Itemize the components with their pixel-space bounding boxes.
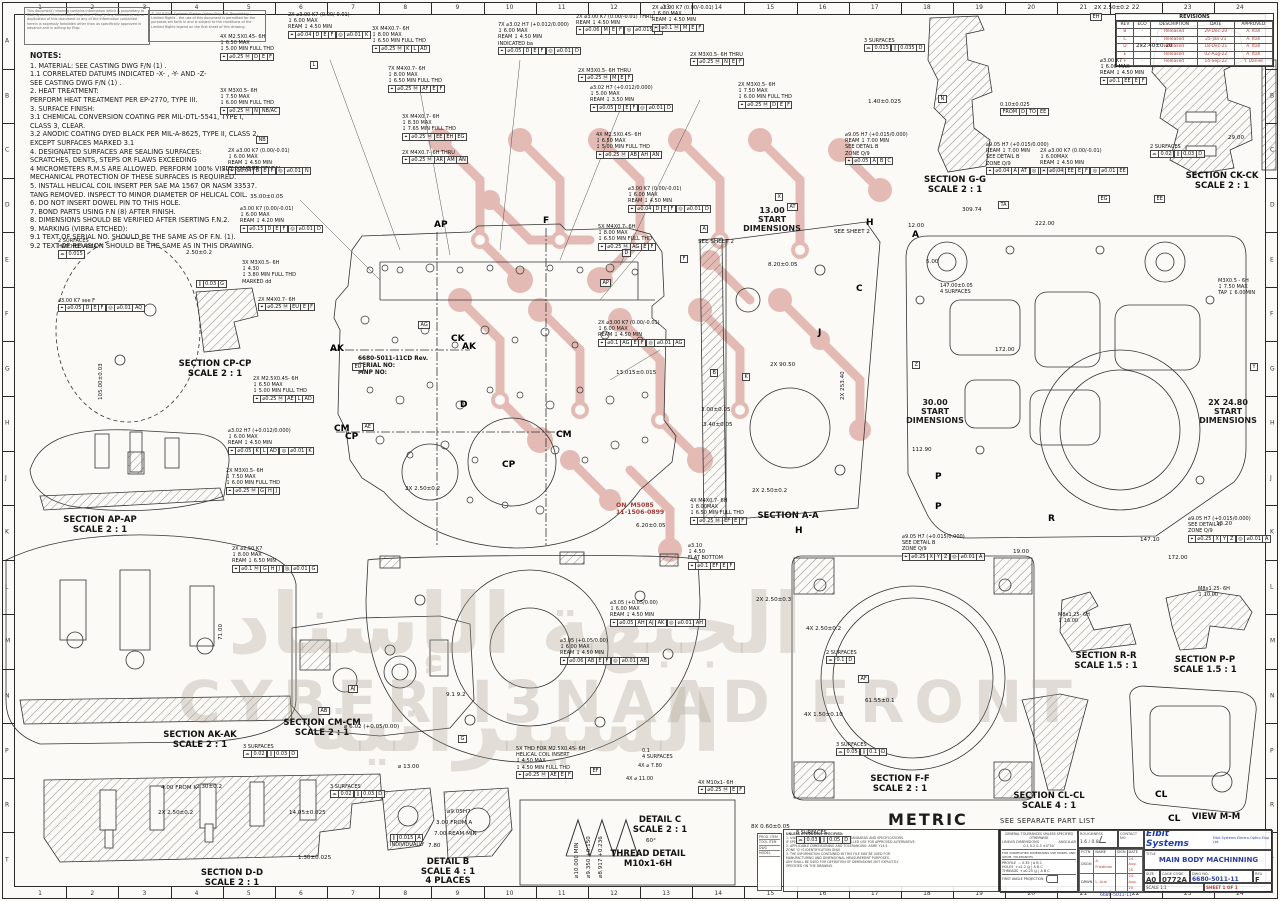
datum-tag: D xyxy=(622,249,631,257)
grid-tick xyxy=(1266,232,1278,233)
grid-tick xyxy=(1266,287,1278,288)
gdt-callout: ⌀3.05 (+0.05/0.00)↧ 6.00 MAXREAM ↧ 4.50 … xyxy=(610,600,706,627)
dimension-text: 9.1 9.2 xyxy=(446,692,466,698)
sheet-number: SHEET 1 OF 1 xyxy=(1206,885,1238,890)
section-label: THREAD DETAILM10x1-6H xyxy=(610,850,685,869)
grid-column-number: 10 xyxy=(506,4,514,11)
section-label: SECTION CK-CKSCALE 2 : 1 xyxy=(1186,172,1259,191)
grid-column-number: 13 xyxy=(662,890,670,897)
grid-tick xyxy=(379,887,380,899)
grid-tick xyxy=(1266,451,1278,452)
dimension-text: 112.90 xyxy=(912,447,932,453)
note-line: SEE CASTING DWG F/N (1) . xyxy=(30,79,310,88)
dimension-text: 147.10 xyxy=(1140,537,1160,543)
grid-tick xyxy=(327,887,328,899)
grid-column-number: 9 xyxy=(455,4,459,11)
grid-column-number: 7 xyxy=(351,4,355,11)
grid-column-number: 12 xyxy=(610,4,618,11)
datum-tag: G xyxy=(458,735,467,743)
prod-item-block: PROD. ITEMTOOL ITEMDWGMODEL xyxy=(757,833,782,891)
grid-tick xyxy=(1266,69,1278,70)
grid-row-letter: E xyxy=(5,256,9,263)
dimension-text: 2.30±0.2 xyxy=(196,784,222,790)
section-label: VIEW M-M xyxy=(1192,813,1240,823)
scale-cell: SCALE 1:1 xyxy=(1144,883,1204,893)
datum-tag: L xyxy=(310,61,318,69)
cutting-plane-letter: C xyxy=(856,284,863,294)
gdt-callout: ⌀3.10↧ 4.50FLAT BOTTOM⌖⌀0.1EFEF xyxy=(688,543,735,570)
drawing-title: MAIN BODY MACHINNING xyxy=(1146,856,1271,864)
dimension-text: 71.00 xyxy=(218,624,224,640)
dimension-text: SEE SHEET 2 xyxy=(834,229,870,235)
size-cell: SIZE A0 xyxy=(1144,870,1160,883)
grid-column-number: 5 xyxy=(247,890,251,897)
drawing-number: 6680-5011-11 xyxy=(1192,876,1239,883)
gdt-callout: 3X M4X0.7- 6H↧ 8.00 MAX↧ 6.50 MIN FULL T… xyxy=(372,26,430,53)
grid-column-number: 21 xyxy=(1080,4,1088,11)
dwg-no-cell: DWG NO. 6680-5011-11 xyxy=(1190,870,1253,883)
gdt-callout: ⌀3.00 K7 see F⌖⌀0.05DEF◎⌀0.01AQ xyxy=(58,298,145,312)
grid-tick xyxy=(484,2,485,14)
grid-column-number: 20 xyxy=(1027,4,1035,11)
grid-column-number: 22 xyxy=(1132,4,1140,11)
gdt-callout: ⌀3.02 H7 (+0.012/0.000)↧ 6.00 MAXREAM ↧ … xyxy=(228,428,314,455)
view-thread-detail xyxy=(520,800,735,885)
section-label: SECTION P-PSCALE 1.5 : 1 xyxy=(1173,656,1236,675)
grid-column-number: 11 xyxy=(558,890,566,897)
datum-tag: AB xyxy=(318,707,330,715)
grid-tick xyxy=(2,451,14,452)
grid-row-letter: J xyxy=(5,474,7,481)
grid-tick xyxy=(1266,723,1278,724)
grid-tick xyxy=(2,723,14,724)
grid-tick xyxy=(1266,560,1278,561)
grid-tick xyxy=(275,887,276,899)
dimension-text: ⌀10.000 MIN xyxy=(574,843,580,878)
grid-tick xyxy=(66,887,67,899)
dimension-text: 2X 2.50±0.3 xyxy=(756,597,791,603)
grid-tick xyxy=(901,2,902,14)
gdt-callout: 7X ⌀3.02 H7 (+0.012/0.000)↧ 6.00 MAXREAM… xyxy=(498,22,581,55)
datum-tag: EG xyxy=(1098,195,1110,203)
gdt-callout: 3X M3X0.5- 6H↧ 4.30↧ 3.80 MIN FULL THDMA… xyxy=(242,260,296,285)
datum-tag: EF xyxy=(590,767,601,775)
gdt-callout: 4X M2.5X0.45- 6H↧ 6.50 MAX↧ 5.00 MIN FUL… xyxy=(220,34,274,61)
dimension-text: 5.00 xyxy=(926,259,938,265)
gdt-callout: 2 SURFACESHATCHED AREA⌓0.015 xyxy=(58,238,97,259)
dimension-text: ⌀9.350 +0.150 xyxy=(586,836,592,878)
grid-row-letter: R xyxy=(5,802,9,809)
dimension-text: 172.00 xyxy=(995,347,1015,353)
gdt-callout: 2X M3X0.5- 6H THRU⌖⌀0.25 ⓂMEF xyxy=(578,68,633,82)
datum-tag: AF xyxy=(858,675,869,683)
section-label: SECTION A-A xyxy=(757,512,818,522)
cutting-plane-letter: F xyxy=(543,216,549,226)
grid-tick xyxy=(588,2,589,14)
grid-tick xyxy=(2,614,14,615)
grid-row-letter: L xyxy=(5,583,8,590)
revision-row: B-Released29-Dec-20A. Itah xyxy=(1117,29,1273,36)
gdt-callout: 8 SURFACES⌓0.03∥0.05D xyxy=(796,830,851,844)
grid-row-letter: H xyxy=(1270,420,1275,427)
gdt-callout: M8x1.25- 6H↧ 10.00 xyxy=(1198,586,1230,598)
gdt-callout: 2X M4X0.7- 6H THRU⌖⌀0.25 ⓂARAMAN xyxy=(402,150,468,164)
gdt-callout: 5X THD FOR M2.5X0.45- 6HHELICAL COIL INS… xyxy=(516,746,585,779)
dimension-text: 12.00 xyxy=(908,223,924,229)
grid-row-letter: F xyxy=(5,311,8,318)
grid-column-number: 18 xyxy=(923,4,931,11)
grid-tick xyxy=(223,887,224,899)
section-label: SECTION R-RSCALE 1.5 : 1 xyxy=(1074,652,1137,671)
dimension-text: 222.00 xyxy=(1035,221,1055,227)
cutting-plane-letter: P xyxy=(935,472,942,482)
note-line: 1.1 CORRELATED DATUMS INDICATED -X- , -Y… xyxy=(30,70,310,79)
dimension-text: 8X 0.60±0.05 xyxy=(751,824,790,830)
note-line: 5. INSTALL HELICAL COIL INSERT PER SAE M… xyxy=(30,182,310,191)
grid-tick xyxy=(1266,178,1278,179)
grid-row-letter: R xyxy=(1270,802,1274,809)
view-bottom-bowl xyxy=(366,552,700,762)
start-dimension-note: 2X 24.80STARTDIMENSIONS xyxy=(1199,398,1257,425)
grid-tick xyxy=(118,887,119,899)
dimension-text: 205.00±0.05 xyxy=(222,166,259,172)
gdt-callout: M3X0.5 - 6H↧ 7.50 MAXTAP ↧ 6.00MIN xyxy=(1218,278,1255,297)
grid-tick xyxy=(588,887,589,899)
first-angle-projection-icon xyxy=(1046,875,1058,883)
dimension-text: 1.30±0.025 xyxy=(298,855,331,861)
grid-column-number: 2 xyxy=(90,890,94,897)
grid-tick xyxy=(1266,396,1278,397)
dimension-text: 13.20 xyxy=(1216,521,1232,527)
datum-tag: AJ xyxy=(348,685,358,693)
grid-row-letter: J xyxy=(1270,474,1272,481)
gdt-callout: 4X ⌀ 7.80 xyxy=(638,763,662,769)
grid-row-letter: H xyxy=(5,420,10,427)
grid-tick xyxy=(953,2,954,14)
grid-column-number: 7 xyxy=(351,890,355,897)
gdt-callout: 2X ⌀3.00 K7 (0.00/-0.01)↧ 6.00 MAXREAM ↧… xyxy=(652,5,714,32)
grid-column-number: 14 xyxy=(714,4,722,11)
grid-tick xyxy=(640,887,641,899)
gdt-callout: 2X M3X0.5- 6H THRU⌖⌀0.25 ⓂNEF xyxy=(690,52,744,66)
grid-row-letter: K xyxy=(5,529,9,536)
grid-column-number: 11 xyxy=(558,4,566,11)
signature-row: DRWNL. Arie24-Aug-20 xyxy=(1080,874,1143,892)
grid-row-letter: B xyxy=(5,92,9,99)
view-section-p-p xyxy=(1166,590,1252,650)
grid-column-number: 19 xyxy=(975,4,983,11)
gdt-callout: 3X M4X0.7- 6H↧ 8.30 MAX↧ 7.65 MIN FULL T… xyxy=(402,114,467,141)
gdt-callout: 3 SURFACES⌓0.02∥0.03D xyxy=(243,744,298,758)
gdt-callout: 4X M4X0.7- 6H↧ 8.00MAX↧ 6.50 MIN FULL TH… xyxy=(690,498,747,525)
grid-tick xyxy=(692,887,693,899)
view-section-g-g xyxy=(928,16,992,172)
dimension-text: 8.20±0.05 xyxy=(768,262,798,268)
grid-tick xyxy=(1266,614,1278,615)
section-label: SECTION G-GSCALE 2 : 1 xyxy=(924,176,986,195)
gdt-callout: 2X ⌀3.00 K7 (0.00/-0.01)↧ 6.00 MAXREAM ↧… xyxy=(598,320,685,347)
company-logo-cell: Elbit Systems Elbit Systems Electro-Opti… xyxy=(1144,830,1273,850)
grid-column-number: 4 xyxy=(195,890,199,897)
dimension-text: 35.00±0.05 xyxy=(250,194,283,200)
dimension-text: 2X 2.50±0.2 xyxy=(158,810,193,816)
revision-table-title: REVISIONS xyxy=(1116,14,1273,21)
gdt-callout: 4X M10x1- 6H⌖⌀0.25 ⓂEF xyxy=(698,780,745,794)
view-section-ap-ap xyxy=(30,430,229,511)
section-label: SECTION CP-CPSCALE 2 : 1 xyxy=(179,360,252,379)
dimension-text: 3.40±0.05 xyxy=(703,422,733,428)
section-label: DETAIL BSCALE 4 : 14 PLACES xyxy=(421,858,475,887)
grid-row-letter: C xyxy=(1270,147,1274,154)
grid-row-letter: G xyxy=(5,365,10,372)
datum-tag: EH xyxy=(1090,13,1102,21)
gdt-callout: 0.14 SURFACES xyxy=(642,748,673,760)
signature-table: FCTNNAMESIGNDATEDSGNA. Friedman24-Aug-20… xyxy=(1078,848,1144,893)
grid-column-number: 6 xyxy=(299,4,303,11)
dimension-text: 2.50±0.2 xyxy=(186,250,212,256)
datum-tag: TA xyxy=(998,201,1009,209)
gdt-callout: 4X ⌀ 11.00 xyxy=(626,776,653,782)
gdt-callout: 7X M4X0.7- 6H↧ 8.00 MAX↧ 6.50 MIN FULL T… xyxy=(388,66,445,93)
datum-tag: AE xyxy=(362,423,374,431)
metric-label: METRIC xyxy=(888,810,968,829)
grid-row-letter: F xyxy=(1270,311,1273,318)
grid-row-letter: N xyxy=(1270,693,1275,700)
grid-row-letter: L xyxy=(1270,583,1273,590)
dimension-text: 2X 2.50±0.2 xyxy=(405,486,440,492)
grid-tick xyxy=(1266,341,1278,342)
datum-tag: B xyxy=(710,369,718,377)
view-right-plan xyxy=(906,236,1246,538)
start-dimension-note: 30.00STARTDIMENSIONS xyxy=(906,398,964,425)
dimension-text: 105.00±0.03 xyxy=(98,363,104,400)
grid-tick xyxy=(431,2,432,14)
dimension-text: 2X 253.40 xyxy=(840,371,846,400)
grid-tick xyxy=(2,69,14,70)
gdt-callout: ⌀3.05 (+0.05/0.00)↧ 6.00 MAXREAM ↧ 4.50 … xyxy=(560,638,649,665)
grid-column-number: 17 xyxy=(871,4,879,11)
tolerance-block: GENERAL TOLERANCES UNLESS SPECIFIED OTHE… xyxy=(1000,830,1078,893)
dimension-text: 19.00 xyxy=(1013,549,1029,555)
signature-row: DSGNA. Friedman24-Aug-20 xyxy=(1080,856,1143,874)
grid-tick xyxy=(275,2,276,14)
cutting-plane-letter: A xyxy=(912,230,919,240)
cutting-plane-letter: H xyxy=(795,526,803,536)
datum-tag: K xyxy=(742,373,750,381)
dimension-text: 2x2.40±0.20 xyxy=(1136,43,1172,49)
datum-tag: A xyxy=(700,225,708,233)
grid-column-number: 15 xyxy=(767,4,775,11)
dimension-text: 1.40±0.025 xyxy=(868,99,901,105)
grid-column-number: 15 xyxy=(767,890,775,897)
grid-tick xyxy=(536,887,537,899)
grid-column-number: 24 xyxy=(1236,4,1244,11)
gdt-callout: ⌀3.00 K7 (0.00/-0.01)↧ 6.00 MAXREAM ↧ 4.… xyxy=(628,186,711,213)
gdt-callout: 2 SURFACES⌓0.1D xyxy=(826,650,857,664)
legal-line: SPECIFIED ON THE DRAWING. xyxy=(786,864,996,868)
datum-tag: N xyxy=(938,95,947,103)
roughness-cell: ROUGHNESS 1.6 / 0.8 xyxy=(1078,830,1118,848)
grid-tick xyxy=(379,2,380,14)
elbit-logo: Elbit Systems xyxy=(1146,830,1209,849)
dimension-text: 60° xyxy=(646,838,656,844)
serial-marking-red: ON 'M508511-1506-0899 xyxy=(616,502,664,516)
dimension-text: ⌀ 6.02 (+0.05/0.00) xyxy=(344,724,399,730)
dimension-text: 14.05±0.025 xyxy=(289,810,326,816)
grid-tick xyxy=(2,341,14,342)
grid-tick xyxy=(484,887,485,899)
grid-column-number: 9 xyxy=(455,890,459,897)
grid-row-letter: P xyxy=(5,747,9,754)
cutting-plane-letter: R xyxy=(1048,514,1055,524)
sheet-cell: SHEET 1 OF 1 xyxy=(1204,883,1273,893)
cutting-plane-letter: AP xyxy=(434,220,448,230)
surface-finish-icon xyxy=(1099,836,1109,843)
dimension-text: 2X 90.50 xyxy=(770,362,795,368)
engineering-drawing-sheet: 1122334455667788991010111112121313141415… xyxy=(0,0,1280,901)
dimension-text: 3.00 FROM A xyxy=(436,820,472,826)
gdt-callout: ⌀9.05 H7 (+0.015/0.000)SEE DETAIL BZONE … xyxy=(902,534,985,561)
gdt-callout: ⌀3.00 K7↧ 6.00 MAXREAM ↧ 4.50 MIN⌖⌀0.1EE… xyxy=(1100,58,1147,85)
note-line: CLASS 3, CLEAR. xyxy=(30,122,310,131)
revision-col-header: DESCRIPTION xyxy=(1151,22,1198,29)
datum-tag: NB xyxy=(256,136,268,144)
dimension-text: 2X 2.50±0.2 xyxy=(1094,5,1129,11)
grid-tick xyxy=(2,560,14,561)
grid-tick xyxy=(1266,669,1278,670)
gdt-callout: 2 SURFACES⌓0.02∥0.03D xyxy=(1150,144,1205,158)
grid-tick xyxy=(1266,123,1278,124)
gdt-callout: 147.00±0.054 SURFACES xyxy=(940,283,973,295)
grid-row-letter: P xyxy=(1270,747,1274,754)
datum-tag: AG xyxy=(418,321,430,329)
dimension-text: 7.80 xyxy=(428,843,440,849)
prod-item-row: MODEL xyxy=(759,851,780,856)
grid-column-number: 23 xyxy=(1184,4,1192,11)
gdt-callout: M8x1.25- 6H↧ 16.00 xyxy=(1058,612,1090,624)
grid-row-letter: C xyxy=(5,147,9,154)
grid-row-letter: M xyxy=(5,638,10,645)
gdt-callout: ⌀3.02 H7 (+0.012/0.000)↧ 5.00 MAXREAM ↧ … xyxy=(590,85,673,112)
gdt-callout: 2X ⌀2.50 K7↧ 8.00 MAXREAM ↧ 6.50 MIN⌖⌀0.… xyxy=(232,546,318,573)
grid-tick xyxy=(2,669,14,670)
dimension-text: 3.00±0.05 xyxy=(701,407,731,413)
grid-tick xyxy=(640,2,641,14)
cutting-plane-letter: P xyxy=(935,502,942,512)
section-label: SECTION AP-APSCALE 2 : 1 xyxy=(63,516,136,535)
dimension-text: 29.00 xyxy=(1228,135,1244,141)
datum-tag: EU xyxy=(352,363,364,371)
dimension-text: 13.015±0.015 xyxy=(616,370,656,376)
cutting-plane-letter: D xyxy=(460,400,467,410)
grid-row-letter: B xyxy=(1270,92,1274,99)
rev-cell: REV F xyxy=(1253,870,1273,883)
grid-row-letter: E xyxy=(1270,256,1274,263)
gdt-callout: 0.10±0.025FROMDTOEE xyxy=(1000,102,1049,116)
grid-tick xyxy=(2,232,14,233)
gdt-callout: 2X M2.5X0.45- 6H↧ 6.50 MAX↧ 5.00 MIN FUL… xyxy=(253,376,314,403)
company-name: Elbit Systems Electro-Optics Elop Ltd. xyxy=(1213,836,1271,844)
dimension-text: 6.20±0.05 xyxy=(636,523,666,529)
dimension-text: ⌀9.05H7 xyxy=(447,809,471,815)
grid-row-letter: G xyxy=(1270,365,1275,372)
proprietary-notice: This document / drawing contains informa… xyxy=(24,7,150,45)
contact-no-cell: CONTACT NO xyxy=(1118,830,1144,848)
grid-row-letter: D xyxy=(5,201,10,208)
cutting-plane-letter: CK xyxy=(451,334,465,344)
gdt-callout: ∥0.03G xyxy=(196,280,227,288)
grid-column-number: 14 xyxy=(714,890,722,897)
grid-row-letter: A xyxy=(5,38,9,45)
grid-column-number: 10 xyxy=(506,890,514,897)
title-block: GENERAL TOLERANCES UNLESS SPECIFIED OTHE… xyxy=(999,829,1272,892)
datum-tag: Z xyxy=(912,361,920,369)
cutting-plane-letter: AK xyxy=(330,344,344,354)
revision-col-header: DATE xyxy=(1197,22,1234,29)
dimension-text: 309.74 xyxy=(962,207,982,213)
section-label: SECTION D-DSCALE 2 : 1 xyxy=(201,869,263,888)
dimension-text: 2X 2.50±0.2 xyxy=(752,488,787,494)
grid-tick xyxy=(2,778,14,779)
note-line: 1. MATERIAL: SEE CASTING DWG F/N (1) . xyxy=(30,62,310,71)
grid-column-number: 8 xyxy=(403,890,407,897)
gdt-callout: 2X M3X0.5- 6H↧ 7.50 MAX↧ 6.00 MIN FULL T… xyxy=(226,468,280,495)
cutting-plane-letter: CP xyxy=(345,432,358,442)
grid-row-letter: M xyxy=(1270,638,1275,645)
datum-tag: EE xyxy=(1154,195,1165,203)
datum-tag: F xyxy=(680,255,688,263)
grid-tick xyxy=(744,887,745,899)
grid-row-letter: N xyxy=(5,693,10,700)
datum-tag: AP xyxy=(600,279,611,287)
cutting-plane-letter: H xyxy=(866,218,874,228)
grid-column-number: 3 xyxy=(142,890,146,897)
grid-column-number: 16 xyxy=(819,4,827,11)
gdt-callout: 2X M3X0.5- 6H↧ 7.50 MAX↧ 6.00 MIN FULL T… xyxy=(738,82,792,109)
datum-tag: X xyxy=(775,193,783,201)
gdt-callout: 4X M2.5X0.45- 6H↧ 6.50 MAX↧ 5.00 MIN FUL… xyxy=(596,132,662,159)
dimension-text: 7.00 REAM MIN xyxy=(434,831,477,837)
grid-column-number: 8 xyxy=(403,4,407,11)
dimension-text: 4.00 FROM K xyxy=(161,785,197,791)
cage-code-cell: CAGE CODE 0772A xyxy=(1160,870,1190,883)
grid-tick xyxy=(2,178,14,179)
gdt-callout: ⌀9.05 H7 (+0.015/0.000)REAM ↧ 7.00 MINSE… xyxy=(845,132,908,165)
dimension-text: SEE SHEET 2 xyxy=(698,239,734,245)
grid-tick xyxy=(2,396,14,397)
revision-col-header: ECO xyxy=(1133,22,1151,29)
dimension-text: ⌀8.917 +0.236 xyxy=(598,836,604,878)
section-label: SECTION F-FSCALE 2 : 1 xyxy=(870,775,929,794)
grid-tick xyxy=(171,887,172,899)
view-section-f-f xyxy=(792,556,1034,800)
grid-tick xyxy=(2,123,14,124)
dimension-text: ⌀ 13.00 xyxy=(398,764,419,770)
gdt-callout: ⌀3.00 K7 (0.00/-0.01)↧ 6.00 MAXREAM ↧ 4.… xyxy=(240,206,323,233)
grid-tick xyxy=(536,2,537,14)
drawing-number-stamp: 6680-5011-11CD Rev.SERIAL NO:MNP NO: xyxy=(358,356,428,377)
title-cell: TITLE MAIN BODY MACHINNING xyxy=(1144,850,1273,870)
gdt-callout: 2X ⌀3.00 K7 (0.00/-0.01) THRUREAM ↧ 4.50… xyxy=(576,14,663,35)
gdt-callout: 2X ⌀3.00 K7 (0.00/-0.01)↧ 6.00MAXREAM ↧ … xyxy=(1040,148,1128,175)
revision-letter: F xyxy=(1255,876,1260,883)
grid-column-number: 1 xyxy=(38,890,42,897)
grid-tick xyxy=(2,832,14,833)
cutting-plane-letter: CM xyxy=(556,430,572,440)
view-m-m xyxy=(1130,686,1256,812)
grid-column-number: 12 xyxy=(610,890,618,897)
grid-tick xyxy=(849,2,850,14)
